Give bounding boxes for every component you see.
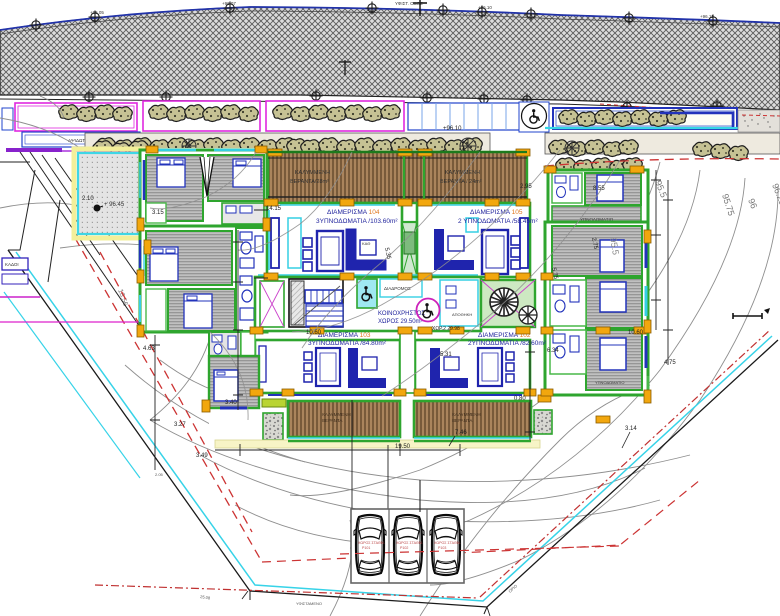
- svg-text:ΒΕΡΑΝΤΑ: ΒΕΡΑΝΤΑ: [322, 418, 342, 423]
- svg-text:P101: P101: [362, 546, 370, 550]
- svg-text:ΧΩΡ.2 29.98: ΧΩΡ.2 29.98: [432, 326, 460, 332]
- svg-text:5.31: 5.31: [440, 352, 452, 358]
- svg-text:3.49: 3.49: [196, 453, 208, 459]
- svg-text:ΚΑΛΥΜΜΕΝΗ: ΚΑΛΥΜΜΕΝΗ: [322, 412, 351, 417]
- svg-text:+ 96.45: + 96.45: [104, 202, 125, 208]
- svg-text:2.10: 2.10: [82, 196, 94, 202]
- svg-text:ΔΙΑΜΕΡΙΣΜΑ 103: ΔΙΑΜΕΡΙΣΜΑ 103: [318, 332, 371, 339]
- svg-text:ΔΙΑΜΕΡΙΣΜΑ 105: ΔΙΑΜΕΡΙΣΜΑ 105: [470, 209, 523, 216]
- svg-text:3.15: 3.15: [152, 210, 164, 216]
- svg-text:3.40: 3.40: [225, 400, 237, 406]
- svg-text:+96.10: +96.10: [443, 126, 462, 132]
- svg-text:ΚΑΛΥΜΜΕΝΗ: ΚΑΛΥΜΜΕΝΗ: [295, 170, 330, 176]
- svg-text:3ΥΠΝΟΔΩΜΑΤΙΑ /103.60m²: 3ΥΠΝΟΔΩΜΑΤΙΑ /103.60m²: [316, 218, 398, 225]
- svg-text:8.55: 8.55: [593, 186, 605, 192]
- svg-text:+96.10: +96.10: [478, 5, 492, 10]
- svg-text:4.63: 4.63: [143, 346, 155, 352]
- svg-text:19.50: 19.50: [395, 444, 411, 450]
- svg-text:ΚΑΛΥΜΜΕΝΗ: ΚΑΛΥΜΜΕΝΗ: [452, 412, 481, 417]
- svg-text:ΒΕΡΑΝΤΑ: ΒΕΡΑΝΤΑ: [452, 418, 472, 423]
- svg-text:+96.05: +96.05: [90, 10, 104, 15]
- svg-text:2.05: 2.05: [155, 472, 164, 477]
- svg-text:0.80: 0.80: [514, 396, 526, 402]
- svg-text:+96.07: +96.07: [222, 1, 236, 6]
- svg-text:3ΥΠΝΟΔΩΜΑΤΙΑ /84.80m²: 3ΥΠΝΟΔΩΜΑΤΙΑ /84.80m²: [308, 340, 387, 347]
- svg-text:ΔΙΑΜΕΡΙΣΜΑ 104: ΔΙΑΜΕΡΙΣΜΑ 104: [327, 209, 380, 216]
- svg-text:ΑΠΟΘΗΚΗ: ΑΠΟΘΗΚΗ: [452, 312, 472, 317]
- svg-text:3.14: 3.14: [625, 426, 637, 432]
- svg-text:ΧΩΡΟΣ ΣΤΑΘΜ.: ΧΩΡΟΣ ΣΤΑΘΜ.: [434, 541, 461, 545]
- svg-text:2ΥΠΝΟΔΩΜΑΤΙΑ /82.60m²: 2ΥΠΝΟΔΩΜΑΤΙΑ /82.60m²: [468, 340, 547, 347]
- svg-text:4.75: 4.75: [664, 360, 676, 366]
- svg-text:ΥΦΙΣΤΑΜΕΝΟ: ΥΦΙΣΤΑΜΕΝΟ: [296, 601, 322, 606]
- svg-text:ΒΕΡΑΝΤΑ/28m²: ΒΕΡΑΝΤΑ/28m²: [290, 179, 329, 185]
- svg-text:ΥΠΝΟΔΩΜΑΤΙΟ: ΥΠΝΟΔΩΜΑΤΙΟ: [595, 380, 625, 385]
- svg-text:14.15: 14.15: [266, 206, 282, 212]
- svg-text:7.46: 7.46: [455, 430, 467, 436]
- svg-text:ΧΩΡΟΣ ΣΤΑΘΜ.: ΧΩΡΟΣ ΣΤΑΘΜ.: [396, 541, 423, 545]
- svg-text:ΒΕΡΑΝΤΑ / 24m²: ΒΕΡΑΝΤΑ / 24m²: [440, 179, 482, 185]
- svg-text:ΚΑΔΟΙ: ΚΑΔΟΙ: [5, 262, 19, 267]
- svg-text:ΧΩΡΟΣ 29.50m²: ΧΩΡΟΣ 29.50m²: [378, 319, 423, 325]
- svg-text:10.60: 10.60: [306, 330, 322, 336]
- svg-text:6.34: 6.34: [547, 348, 559, 354]
- svg-text:ΚΑΘ: ΚΑΘ: [362, 241, 370, 246]
- svg-text:ΧΩΡΟΣ ΣΤΑΘΜ.: ΧΩΡΟΣ ΣΤΑΘΜ.: [358, 541, 385, 545]
- svg-text:P102: P102: [400, 546, 408, 550]
- svg-text:+96.11: +96.11: [700, 14, 714, 19]
- svg-text:3.27: 3.27: [174, 422, 186, 428]
- svg-text:2.95: 2.95: [520, 184, 532, 190]
- svg-text:10.60: 10.60: [628, 330, 644, 336]
- svg-text:P103: P103: [438, 546, 446, 550]
- svg-text:ΥΦΙΣΤ. ΟΔΟΣ: ΥΦΙΣΤ. ΟΔΟΣ: [395, 1, 423, 6]
- svg-text:2 ΥΠΝΟΔΩΜΑΤΙΑ /58.45m²: 2 ΥΠΝΟΔΩΜΑΤΙΑ /58.45m²: [458, 218, 538, 225]
